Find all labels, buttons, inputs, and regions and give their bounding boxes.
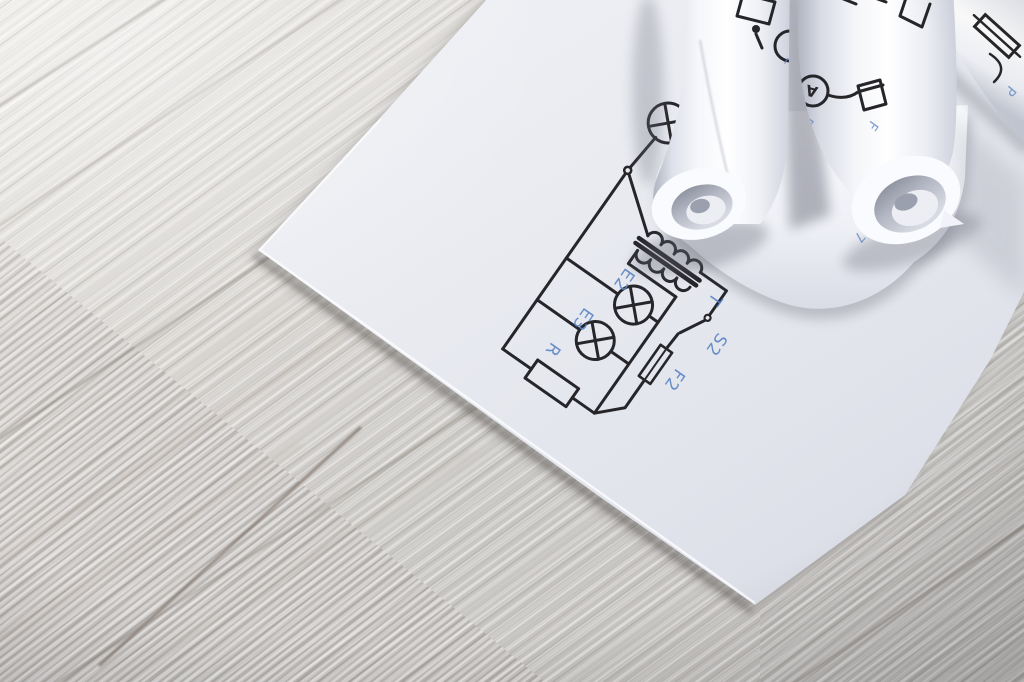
vignette	[0, 0, 1024, 682]
blueprints-photo: E2 E3 R T S2 F2 7	[0, 0, 1024, 682]
photo-scene: E2 E3 R T S2 F2 7	[0, 0, 1024, 682]
